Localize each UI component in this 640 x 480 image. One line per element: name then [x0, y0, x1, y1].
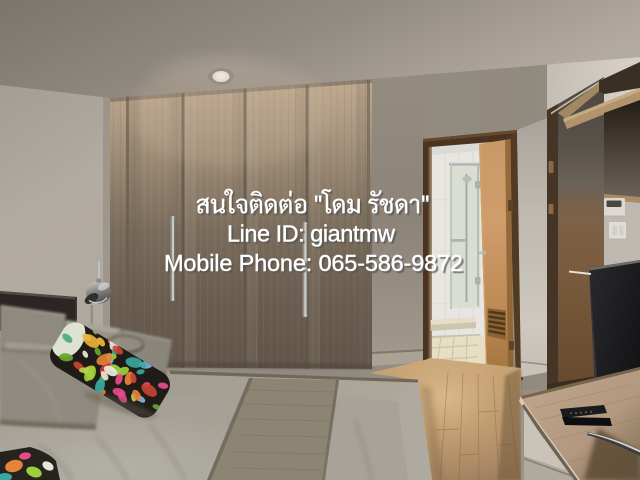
- svg-text:Mobile Phone: 065-586-9872: Mobile Phone: 065-586-9872: [164, 250, 463, 276]
- svg-text:Line ID: giantmw: Line ID: giantmw: [227, 221, 396, 247]
